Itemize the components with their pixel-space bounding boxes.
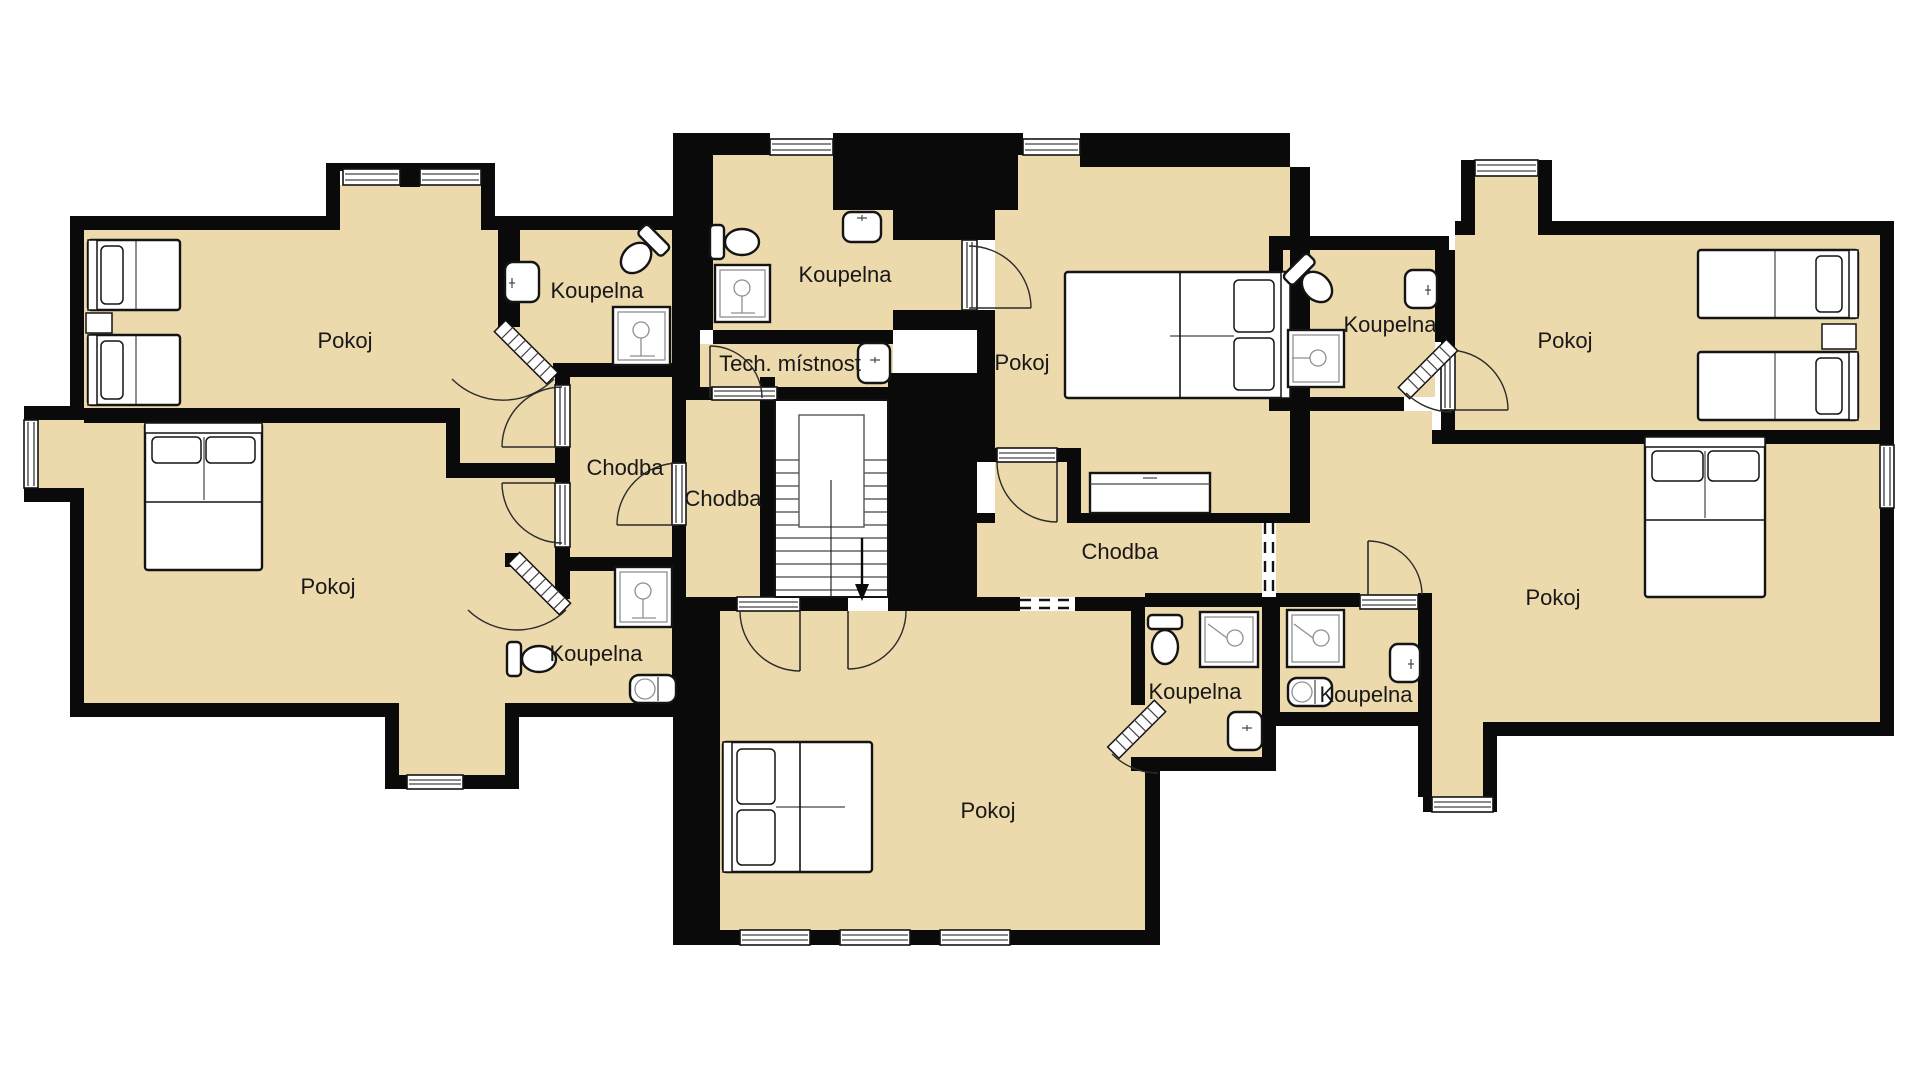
sink <box>843 212 881 242</box>
room-label-pokoj-bottom-right: Pokoj <box>1525 585 1580 610</box>
room-label-koupelna-top-center: Koupelna <box>799 262 893 287</box>
single-bed <box>1698 352 1858 420</box>
room-label-pokoj-top-right: Pokoj <box>1537 328 1592 353</box>
room-label-koupelna-right-1: Koupelna <box>1344 312 1438 337</box>
bathtub <box>630 675 676 703</box>
window <box>1432 797 1493 812</box>
window <box>24 420 38 488</box>
shower <box>1287 610 1344 667</box>
double-bed <box>145 423 262 570</box>
shower <box>613 307 670 365</box>
room-label-tech-mistnost: Tech. místnost <box>719 351 861 376</box>
door <box>997 448 1057 462</box>
window <box>712 387 777 400</box>
staircase <box>775 400 888 601</box>
window <box>407 775 463 789</box>
window <box>940 930 1010 945</box>
sink <box>505 262 539 302</box>
shower <box>615 567 672 627</box>
room-label-pokoj-top-center: Pokoj <box>994 350 1049 375</box>
window <box>343 169 400 185</box>
dashed-opening <box>1262 523 1276 597</box>
window <box>840 930 910 945</box>
room-label-chodba-left: Chodba <box>586 455 664 480</box>
shower <box>1200 612 1258 667</box>
double-bed <box>1645 437 1765 597</box>
sink <box>1390 644 1420 682</box>
dashed-opening <box>1020 597 1075 611</box>
door <box>555 483 570 547</box>
floor-plan: PokojKoupelnaKoupelnaTech. místnostPokoj… <box>0 0 1920 1080</box>
window <box>420 169 481 185</box>
double-bed <box>1065 272 1290 398</box>
room-label-chodba-center: Chodba <box>684 486 762 511</box>
water-heater <box>858 343 890 383</box>
wardrobe <box>1090 473 1210 513</box>
window <box>740 930 810 945</box>
door <box>737 597 800 611</box>
room-label-koupelna-bottom-center: Koupelna <box>1149 679 1243 704</box>
window <box>1023 139 1080 155</box>
washbasin-square <box>1288 330 1344 387</box>
sink <box>1228 712 1262 750</box>
door <box>962 240 977 310</box>
sink <box>1405 270 1437 308</box>
door <box>555 385 570 447</box>
room-label-koupelna-left-1: Koupelna <box>551 278 645 303</box>
room-label-pokoj-bottom-center: Pokoj <box>960 798 1015 823</box>
toilet <box>1148 615 1182 664</box>
window <box>770 139 833 155</box>
single-bed <box>88 240 180 310</box>
toilet <box>710 225 759 259</box>
room-label-pokoj-top-left: Pokoj <box>317 328 372 353</box>
room-label-koupelna-right-2: Koupelna <box>1320 682 1414 707</box>
double-bed <box>723 742 872 872</box>
single-bed <box>88 335 180 405</box>
nightstand <box>1822 324 1856 349</box>
window <box>1880 445 1894 508</box>
window <box>1475 160 1538 176</box>
shower <box>715 265 770 322</box>
nightstand <box>86 313 112 333</box>
floor-plan-canvas: PokojKoupelnaKoupelnaTech. místnostPokoj… <box>0 0 1920 1080</box>
door <box>1360 595 1418 609</box>
room-label-koupelna-left-2: Koupelna <box>550 641 644 666</box>
single-bed <box>1698 250 1858 318</box>
room-label-chodba-right: Chodba <box>1081 539 1159 564</box>
room-label-pokoj-bottom-left: Pokoj <box>300 574 355 599</box>
